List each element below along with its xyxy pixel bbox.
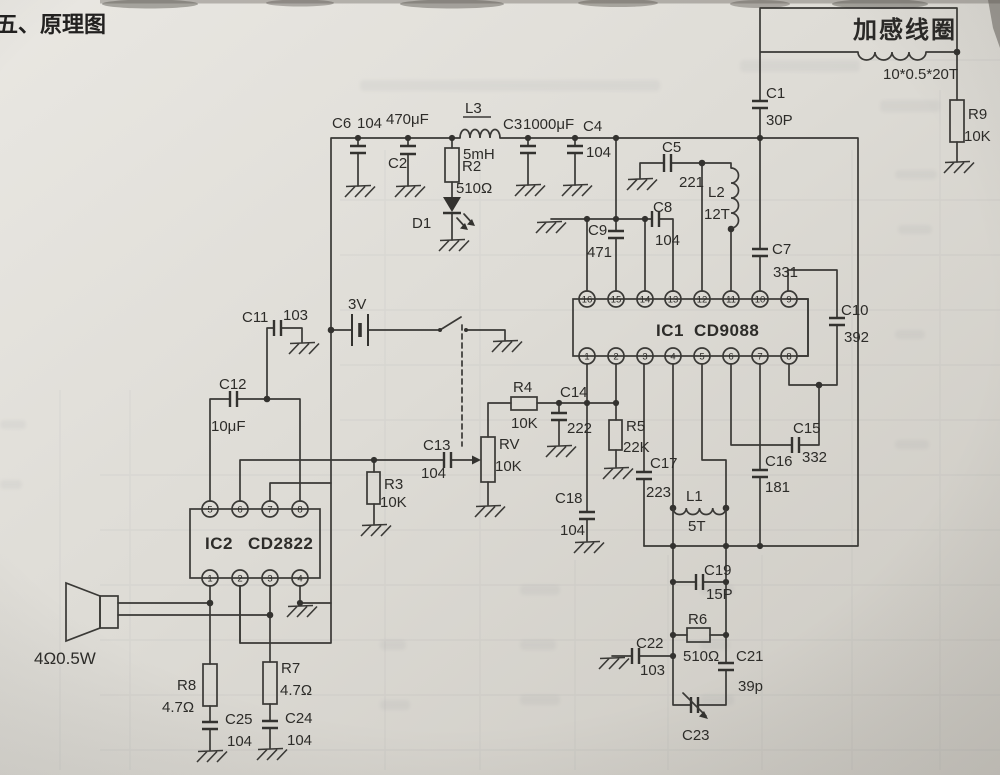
speaker-spec-label: 4Ω0.5W xyxy=(34,649,96,668)
label-C11-ref: C11 xyxy=(242,309,268,326)
ic1-pin-3: 3 xyxy=(642,352,647,363)
label-C10-value: 392 xyxy=(844,329,869,346)
label-C15-ref: C15 xyxy=(793,420,821,437)
label-C6-ref: C6 xyxy=(332,115,351,132)
label-R2-value: 510Ω xyxy=(456,180,492,197)
ic1-pin-15: 15 xyxy=(611,295,622,306)
ic2-pin-5: 5 xyxy=(207,505,212,516)
scanned-schematic-page: 五、原理图 xyxy=(0,0,1000,775)
label-C13-ref: C13 xyxy=(423,437,451,454)
label-L3-ref: L3 xyxy=(465,100,482,117)
label-C17-value: 223 xyxy=(646,484,671,501)
label-R2-ref: R2 xyxy=(462,158,481,175)
ic1-pin-5: 5 xyxy=(699,352,704,363)
label-C14-value: 222 xyxy=(567,420,592,437)
ic1-pin-9: 9 xyxy=(786,295,791,306)
label-C18-ref: C18 xyxy=(555,490,583,507)
label-R6-ref: R6 xyxy=(688,611,707,628)
label-C7-value: 331 xyxy=(773,264,798,281)
label-L2-value: 12T xyxy=(704,206,730,223)
label-C18-value: 104 xyxy=(560,522,585,539)
label-R3-ref: R3 xyxy=(384,476,403,493)
label-R6-value: 510Ω xyxy=(683,648,719,665)
label-C14-ref: C14 xyxy=(560,384,588,401)
label-C25-value: 104 xyxy=(227,733,252,750)
label-C19-value: 15P xyxy=(706,586,733,603)
label-R7-value: 4.7Ω xyxy=(280,682,312,699)
label-C3-ref: C3 xyxy=(503,116,522,133)
ic1-pin-14: 14 xyxy=(640,295,651,306)
ic2-pin-4: 4 xyxy=(297,574,302,585)
label-C7-ref: C7 xyxy=(772,241,791,258)
label-C5-ref: C5 xyxy=(662,139,681,156)
label-L1-ref: L1 xyxy=(686,488,703,505)
ic2-pin-3: 3 xyxy=(267,574,272,585)
label-RV-value: 10K xyxy=(495,458,522,475)
label-C22-ref: C22 xyxy=(636,635,664,652)
page-title: 五、原理图 xyxy=(0,12,106,37)
ic2-part: CD2822 xyxy=(248,534,313,553)
label-R9-value: 10K xyxy=(964,128,991,145)
ic1-pin-2: 2 xyxy=(613,352,618,363)
label-R3-value: 10K xyxy=(380,494,407,511)
label-C21-value: 39p xyxy=(738,678,763,695)
label-L1-value: 5T xyxy=(688,518,706,535)
label-C2-ref: C2 xyxy=(388,155,407,172)
ic1-pin-13: 13 xyxy=(668,295,679,306)
ic2-pin-1: 1 xyxy=(207,574,212,585)
label-C25-ref: C25 xyxy=(225,711,253,728)
ic2-pin-8: 8 xyxy=(297,505,302,516)
label-C1-ref: C1 xyxy=(766,85,785,102)
label-C4-ref: C4 xyxy=(583,118,602,135)
label-C24-ref: C24 xyxy=(285,710,313,727)
label-C23-ref: C23 xyxy=(682,727,710,744)
label-R7-ref: R7 xyxy=(281,660,300,677)
ic1-name: IC1 xyxy=(656,321,684,340)
label-C1-value: 30P xyxy=(766,112,793,129)
label-C9-value: 471 xyxy=(587,244,612,261)
ic2-pin-7: 7 xyxy=(267,505,272,516)
label-C16-ref: C16 xyxy=(765,453,793,470)
label-R5-ref: R5 xyxy=(626,418,645,435)
label-R8-ref: R8 xyxy=(177,677,196,694)
label-C10-ref: C10 xyxy=(841,302,869,319)
label-C16-value: 181 xyxy=(765,479,790,496)
ic1-pin-11: 11 xyxy=(726,295,736,306)
label-D1-ref: D1 xyxy=(412,215,431,232)
ic1-pin-10: 10 xyxy=(755,295,766,306)
paper-background xyxy=(0,0,1000,775)
label-R8-value: 4.7Ω xyxy=(162,699,194,716)
ic1-pin-16: 16 xyxy=(582,295,593,306)
loading-coil-spec: 10*0.5*20T xyxy=(883,66,958,83)
label-C9-ref: C9 xyxy=(588,222,607,239)
label-R5-value: 22K xyxy=(623,439,650,456)
battery-voltage-label: 3V xyxy=(348,296,366,313)
ic1-pin-6: 6 xyxy=(728,352,733,363)
label-C3-value: 1000μF xyxy=(523,116,574,133)
label-C12-value: 10μF xyxy=(211,418,246,435)
label-C4-value: 104 xyxy=(586,144,611,161)
label-C11-value: 103 xyxy=(283,307,308,324)
schematic-canvas: 五、原理图 xyxy=(0,0,1000,775)
ic1-pin-1: 1 xyxy=(584,352,589,363)
label-C19-ref: C19 xyxy=(704,562,732,579)
label-RV-ref: RV xyxy=(499,436,520,453)
label-C2-value: 470μF xyxy=(386,111,429,128)
label-C21-ref: C21 xyxy=(736,648,764,665)
label-C15-value: 332 xyxy=(802,449,827,466)
label-C24-value: 104 xyxy=(287,732,312,749)
ic2-pin-6: 6 xyxy=(237,505,242,516)
ic1-pin-4: 4 xyxy=(670,352,675,363)
ic2-pin-2: 2 xyxy=(237,574,242,585)
label-C17-ref: C17 xyxy=(650,455,678,472)
label-L2-ref: L2 xyxy=(708,184,725,201)
label-R4-value: 10K xyxy=(511,415,538,432)
ic1-part: CD9088 xyxy=(694,321,759,340)
label-C22-value: 103 xyxy=(640,662,665,679)
label-C13-value: 104 xyxy=(421,465,446,482)
label-C6-value: 104 xyxy=(357,115,382,132)
label-C8-ref: C8 xyxy=(653,199,672,216)
label-R4-ref: R4 xyxy=(513,379,532,396)
loading-coil-label: 加感线圈 xyxy=(853,16,957,44)
ic1-pin-7: 7 xyxy=(757,352,762,363)
label-C8-value: 104 xyxy=(655,232,680,249)
label-C5-value: 221 xyxy=(679,174,704,191)
label-R9-ref: R9 xyxy=(968,106,987,123)
ic1-pin-12: 12 xyxy=(697,295,708,306)
ic2-name: IC2 xyxy=(205,534,233,553)
ic1-pin-8: 8 xyxy=(786,352,791,363)
label-C12-ref: C12 xyxy=(219,376,247,393)
